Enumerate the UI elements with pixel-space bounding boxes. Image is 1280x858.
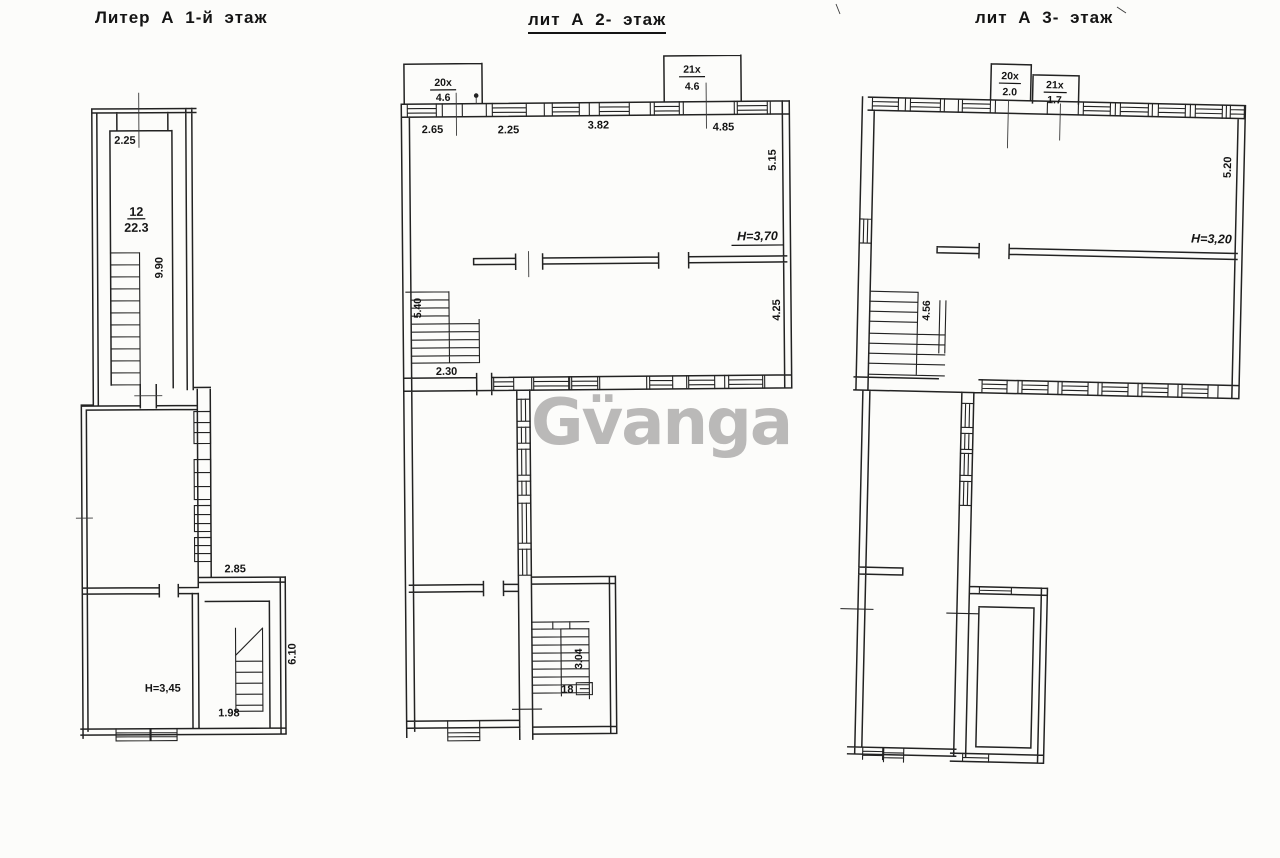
dim-annex-width: 2.85 xyxy=(224,563,245,575)
watermark-logo: Gv̈anga xyxy=(531,386,791,460)
dim-stair-vert: 5.40 xyxy=(412,298,424,319)
dim-stair-bottom: 2.30 xyxy=(436,366,458,378)
plan3-stairs xyxy=(868,291,946,376)
dim-annex-depth: 6.10 xyxy=(287,643,299,664)
balcony-right-number: 21x xyxy=(683,64,701,76)
plan1-labels: 2.25 12 22.3 9.90 2.85 6.10 H=3,45 1.98 xyxy=(114,134,299,720)
dim-room-length: 9.90 xyxy=(154,257,166,278)
dim-top-4: 4.85 xyxy=(713,121,735,133)
dim-top-3: 3.82 xyxy=(588,119,610,131)
balcony-left-number: 20x xyxy=(434,77,452,89)
plan1-drawing: 2.25 12 22.3 9.90 2.85 6.10 H=3,45 1.98 xyxy=(50,84,314,760)
ceiling-height-label: H=3,20 xyxy=(1191,231,1232,246)
stair-dim-vert: 3.04 xyxy=(573,648,585,669)
dim-top-1: 2.65 xyxy=(422,124,444,136)
plan3-dimension-lines xyxy=(1007,100,1060,149)
stair-count: 18 xyxy=(561,684,573,696)
balcony-right-area: 1.7 xyxy=(1047,94,1062,106)
room-area: 22.3 xyxy=(124,221,148,235)
plan3-drawing: 20x 2.0 21x 1.7 5.20 H=3,20 4.56 xyxy=(830,49,1256,778)
dim-room-width: 2.25 xyxy=(114,135,135,147)
balcony-right-number: 21x xyxy=(1046,79,1064,91)
dim-right-upper: 5.20 xyxy=(1222,156,1234,178)
dim-stair-width: 1.98 xyxy=(218,707,239,719)
room-number: 12 xyxy=(129,205,143,219)
dim-stair-vert: 4.56 xyxy=(920,300,932,321)
ceiling-height-label: H=3,45 xyxy=(145,683,181,695)
ceiling-height-label: H=3,70 xyxy=(737,229,778,243)
balcony-left-area: 2.0 xyxy=(1002,86,1017,98)
dim-right-upper: 5.15 xyxy=(767,149,779,171)
balcony-left-number: 20x xyxy=(1001,70,1019,82)
plan1-walls xyxy=(78,108,286,738)
plan2-stairs xyxy=(406,291,593,701)
scan-artifacts xyxy=(0,0,1280,40)
dim-right-mid: 4.25 xyxy=(771,299,783,321)
plan3-walls xyxy=(846,61,1247,768)
balcony-right-area: 4.6 xyxy=(685,81,700,93)
balcony-left-area: 4.6 xyxy=(436,92,451,104)
plan3-wall-ticks xyxy=(841,97,1227,619)
survey-mark-icon xyxy=(474,93,479,98)
dim-top-2: 2.25 xyxy=(498,124,520,136)
plan2-dimension-lines xyxy=(456,83,708,278)
